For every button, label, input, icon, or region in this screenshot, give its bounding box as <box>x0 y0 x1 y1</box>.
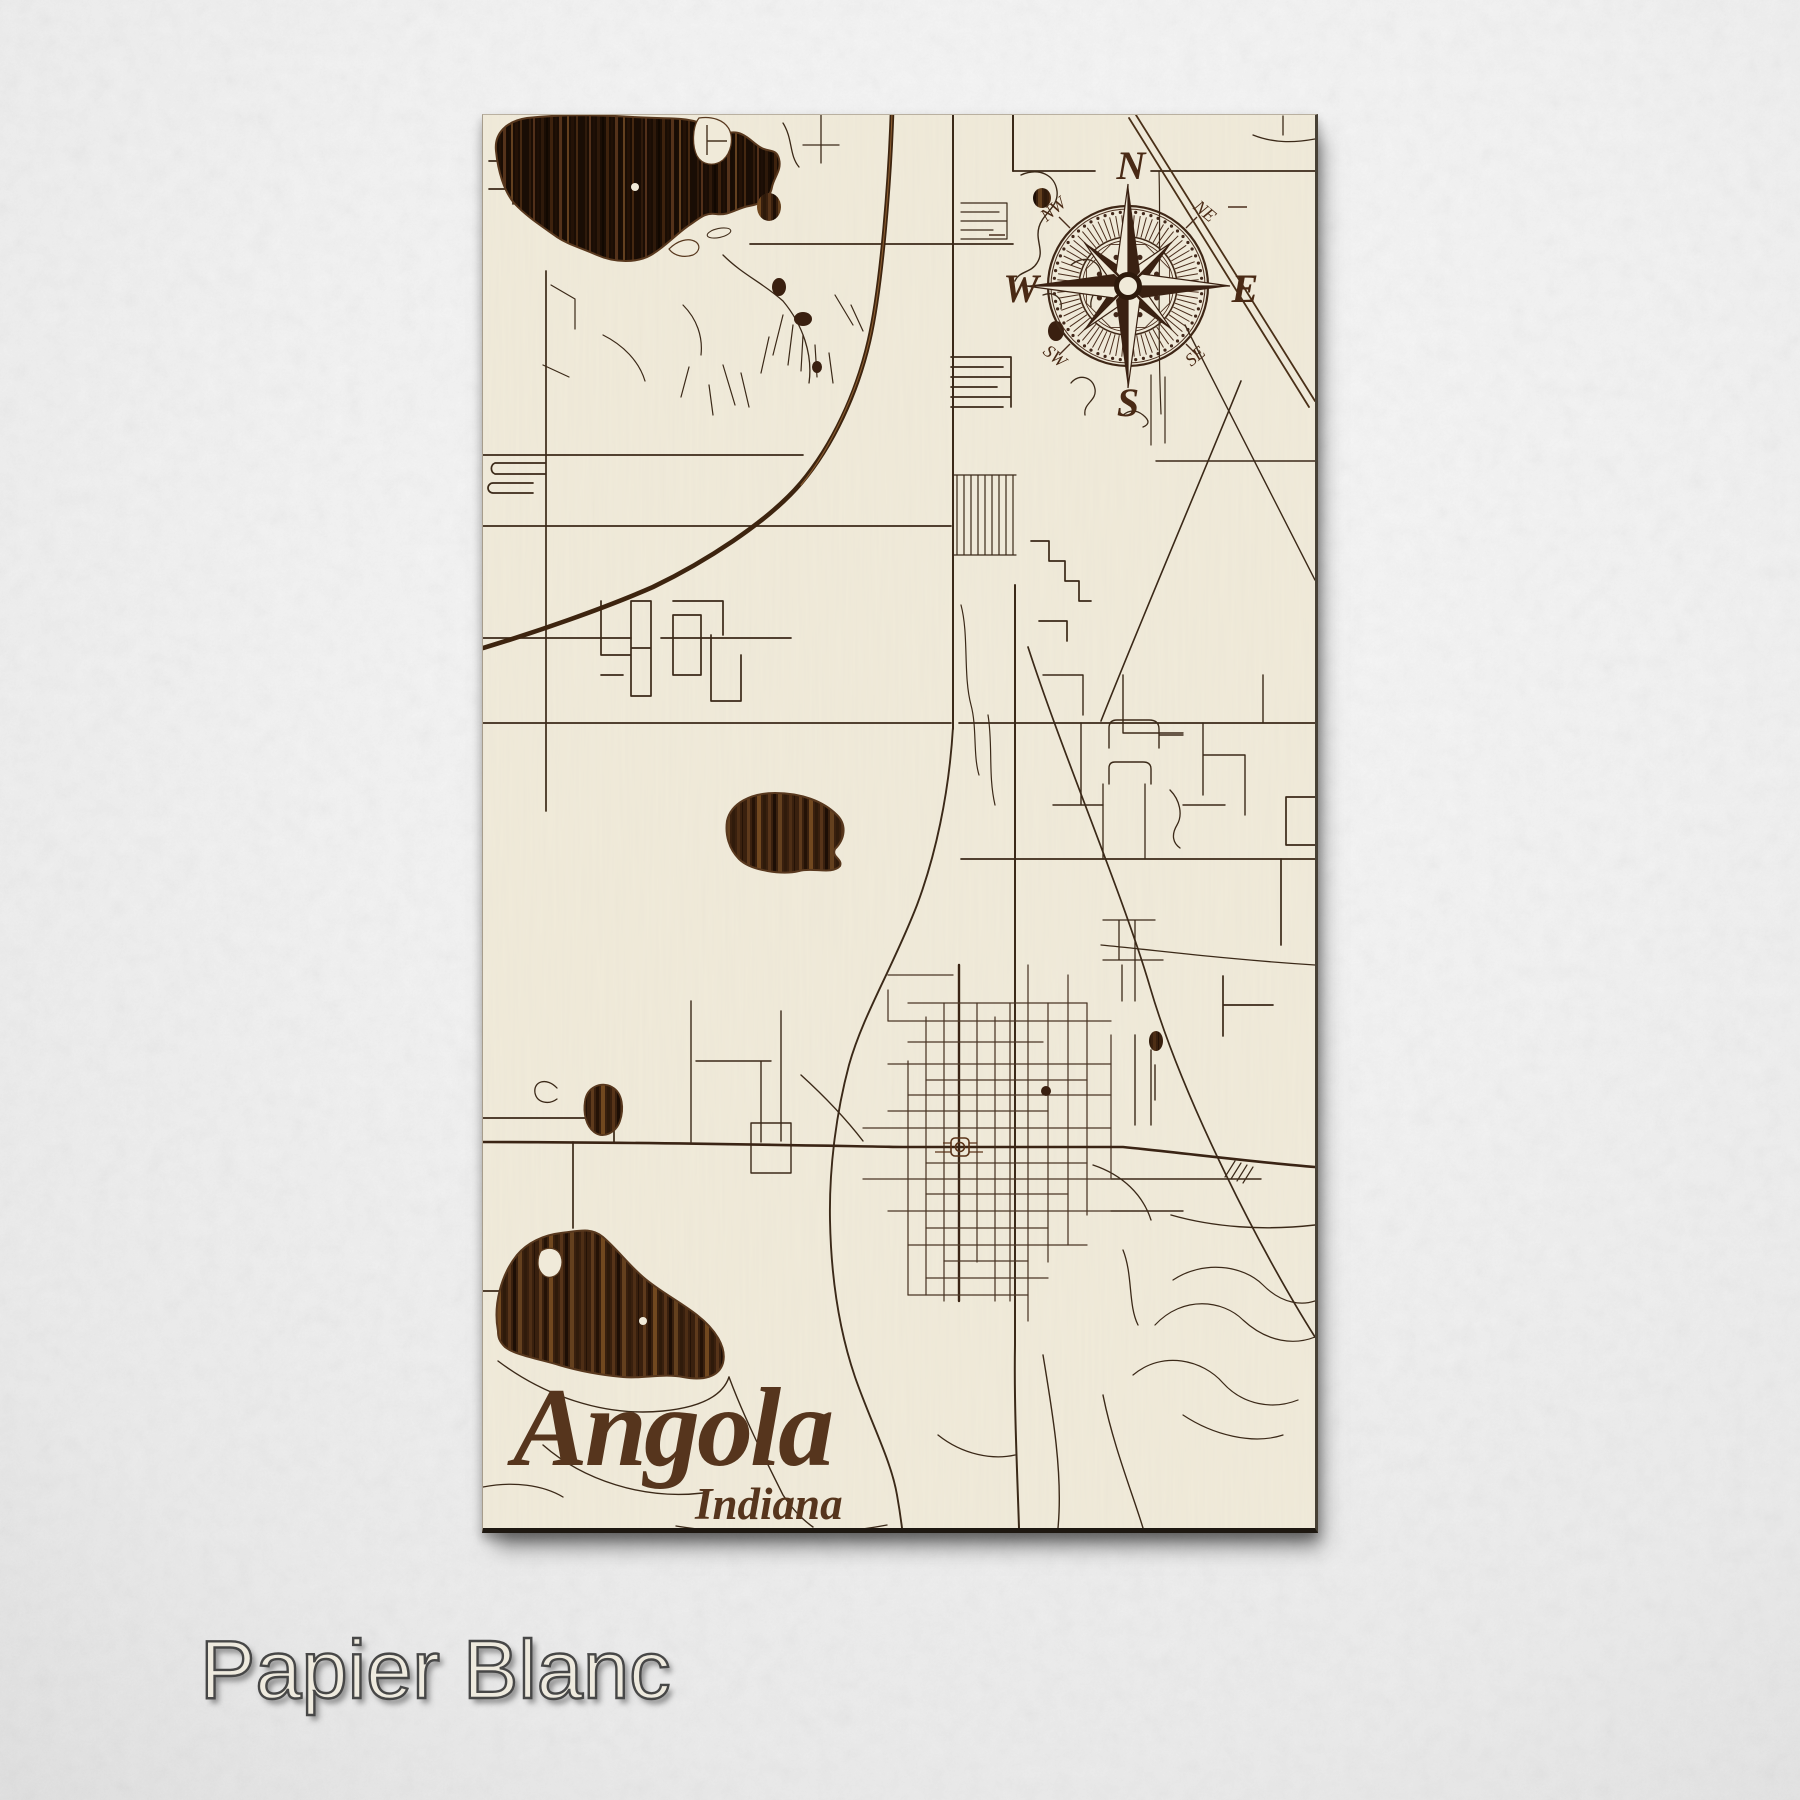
svg-text:Indiana: Indiana <box>694 1479 843 1528</box>
svg-text:Angola: Angola <box>507 1366 832 1490</box>
svg-text:E: E <box>1231 266 1259 311</box>
svg-text:W: W <box>1003 266 1041 311</box>
svg-text:S: S <box>1117 380 1139 425</box>
svg-text:N: N <box>1116 143 1148 188</box>
